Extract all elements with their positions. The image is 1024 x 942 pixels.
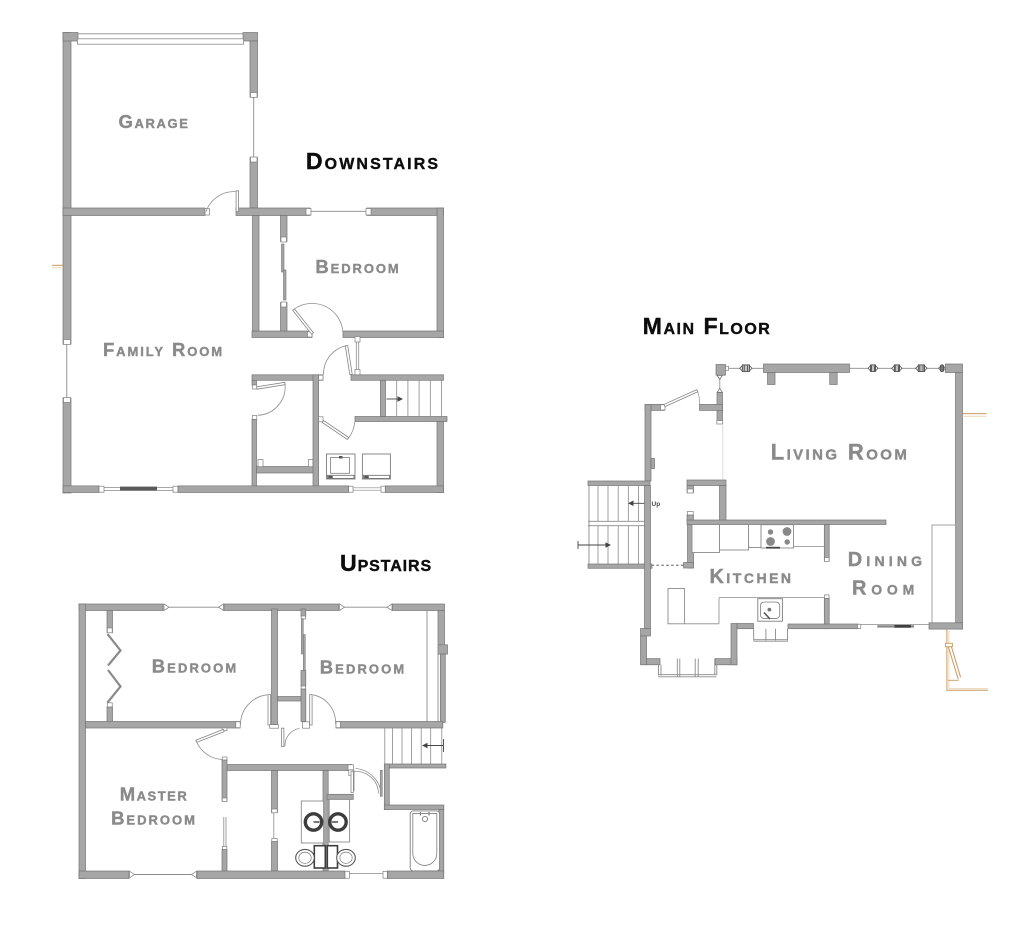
svg-text:Room: Room <box>852 578 919 600</box>
svg-text:Living Room: Living Room <box>771 440 910 465</box>
svg-text:Bedroom: Bedroom <box>111 808 197 829</box>
svg-text:Dining: Dining <box>848 549 927 571</box>
svg-text:Garage: Garage <box>119 111 190 132</box>
svg-text:Up: Up <box>652 501 661 508</box>
svg-text:Main Floor: Main Floor <box>643 313 772 339</box>
svg-text:Master: Master <box>120 784 188 805</box>
svg-text:Family Room: Family Room <box>103 339 224 360</box>
svg-text:Downstairs: Downstairs <box>306 148 440 174</box>
svg-text:Bedroom: Bedroom <box>315 256 400 277</box>
svg-text:Upstairs: Upstairs <box>340 550 432 576</box>
svg-text:Bedroom: Bedroom <box>320 657 407 678</box>
svg-text:Bedroom: Bedroom <box>152 656 239 677</box>
svg-text:Kitchen: Kitchen <box>709 566 793 588</box>
